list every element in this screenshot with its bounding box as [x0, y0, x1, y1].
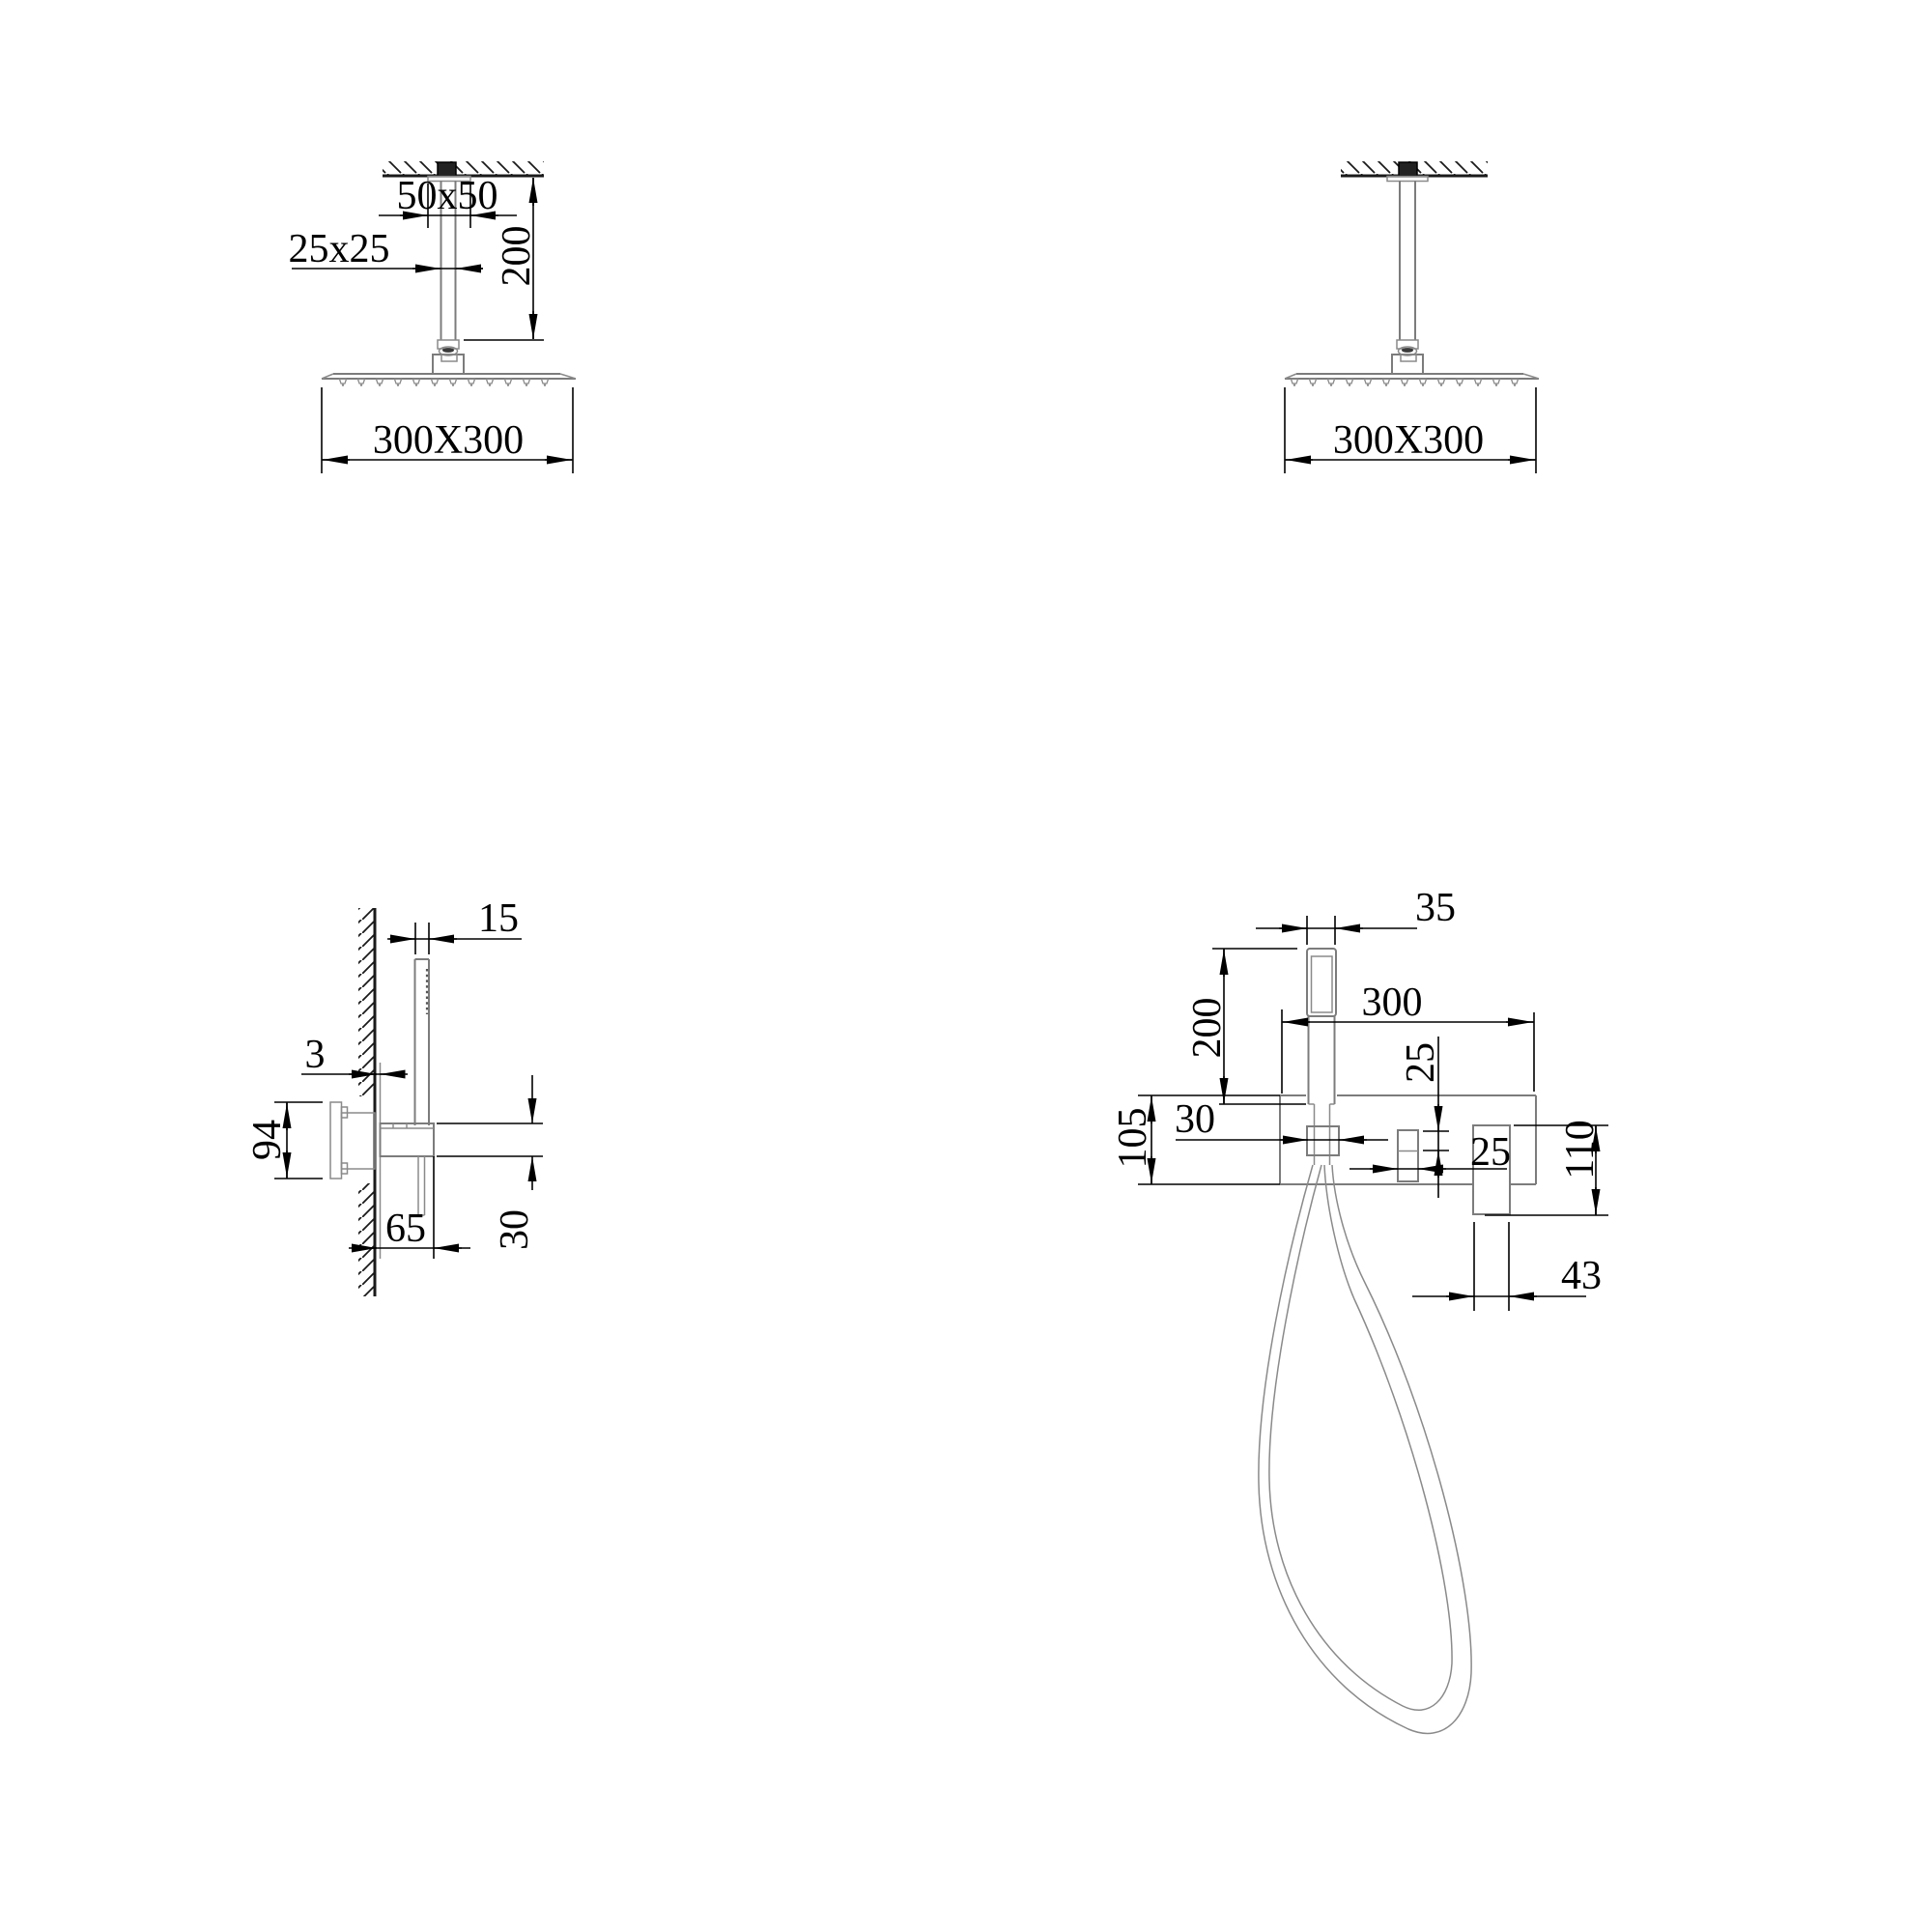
spray-nozzles: [1292, 380, 1519, 386]
holder-spout-block: [381, 1123, 435, 1156]
dim-label: 25: [1470, 1130, 1511, 1175]
handset-holder: [1307, 1126, 1339, 1155]
handset-side: [415, 959, 430, 1125]
dim-label: 300X300: [373, 418, 524, 463]
dim-valve-94: 94: [245, 1102, 323, 1179]
dim-handset-35: 35: [1256, 886, 1456, 945]
dim-handset-200: 200: [1185, 949, 1306, 1104]
spray-nozzles: [340, 380, 549, 386]
dim-label: 200: [495, 226, 539, 287]
dim-label: 25x25: [289, 227, 390, 271]
dim-label: 30: [1175, 1097, 1215, 1142]
ceiling-shower-left-view: 50x50 25x25 200 300X300: [289, 161, 577, 473]
dim-label: 15: [478, 896, 519, 941]
dim-label: 110: [1558, 1120, 1603, 1179]
wall-hatch: [358, 908, 374, 1096]
ceiling-shower-right-view: 300X300: [1285, 161, 1539, 473]
shower-head-panel: [322, 374, 576, 379]
dim-flange-50x50: 50x50: [379, 174, 517, 228]
dim-label: 30: [493, 1209, 537, 1250]
dim-label: 105: [1111, 1108, 1155, 1169]
dim-label: 43: [1561, 1254, 1602, 1298]
drawing-sheet: 50x50 25x25 200 300X300: [0, 0, 1932, 1932]
dim-spout-30: 30: [437, 1075, 543, 1250]
arm-connector: [433, 340, 464, 374]
dim-label: 65: [385, 1207, 426, 1251]
dim-label: 300X300: [1333, 418, 1484, 463]
arm-connector: [1392, 340, 1423, 374]
shower-head-panel: [1285, 374, 1539, 379]
dim-gap-3: 3: [301, 1033, 408, 1077]
dim-label: 94: [245, 1120, 290, 1160]
threaded-mount-block: [1399, 162, 1417, 176]
dim-label: 25: [1399, 1042, 1443, 1083]
diverter-knob: [1398, 1130, 1418, 1181]
dim-handset-15: 15: [387, 896, 522, 954]
concealed-valve-body: [330, 1102, 375, 1179]
dim-head-300x300: 300X300: [322, 387, 573, 473]
dim-handle-43: 43: [1412, 1222, 1602, 1311]
dim-head-300x300: 300X300: [1285, 387, 1536, 473]
shower-arm: [1400, 181, 1415, 340]
dim-label: 35: [1415, 886, 1456, 930]
wall-hatch: [358, 1183, 374, 1296]
dim-label: 3: [305, 1033, 326, 1077]
dim-arm-25x25: 25x25: [289, 227, 484, 271]
dim-label: 200: [1185, 998, 1230, 1059]
dim-label: 300: [1362, 980, 1423, 1025]
hand-shower-side-view: 15 3 94 30: [245, 896, 543, 1296]
shower-hose-loop: [1259, 1165, 1471, 1733]
dim-knob-25: 25: [1350, 1130, 1511, 1175]
hand-shower-front-view: 35 200 300 25: [1111, 886, 1608, 1733]
dim-offset-25: 25: [1399, 1037, 1449, 1198]
dim-label: 50x50: [397, 174, 498, 218]
ceiling-flange: [1387, 177, 1428, 182]
handset-front: [1307, 949, 1336, 1165]
shower-dimension-diagram: 50x50 25x25 200 300X300: [0, 0, 1932, 1932]
